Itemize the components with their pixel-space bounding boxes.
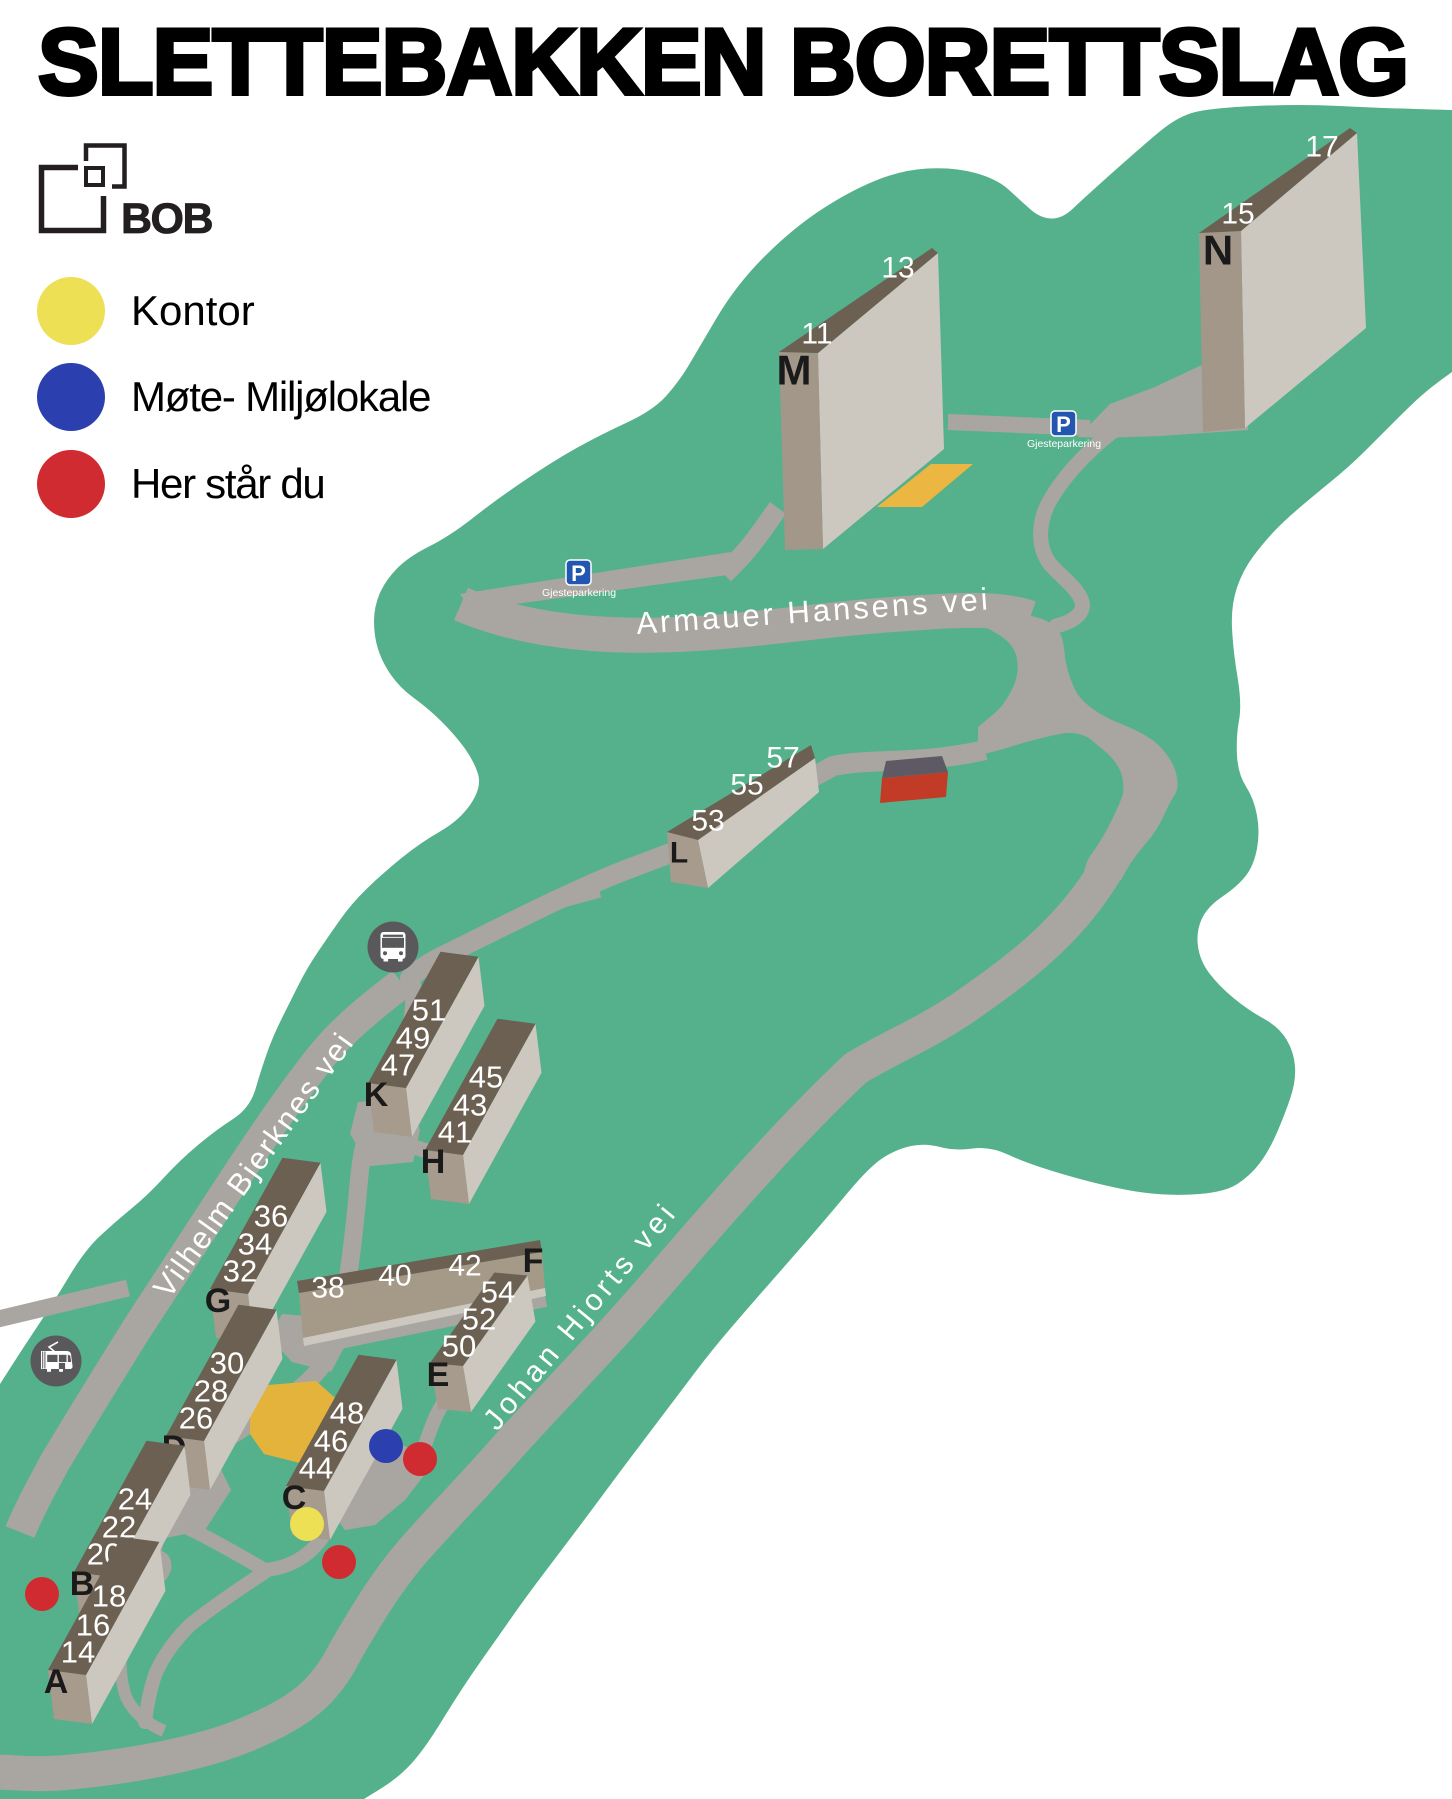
svg-text:13: 13 [881, 252, 914, 285]
svg-text:53: 53 [691, 805, 724, 838]
svg-text:G: G [205, 1282, 231, 1320]
svg-text:Kontor: Kontor [131, 287, 255, 334]
svg-text:24: 24 [118, 1482, 152, 1517]
svg-text:P: P [1056, 412, 1071, 437]
svg-text:N: N [1203, 227, 1233, 274]
svg-text:M: M [777, 347, 812, 394]
svg-text:P: P [571, 561, 586, 586]
svg-text:42: 42 [448, 1250, 481, 1283]
svg-text:L: L [670, 837, 688, 870]
svg-text:Møte- Miljølokale: Møte- Miljølokale [131, 373, 430, 420]
svg-text:K: K [364, 1076, 389, 1114]
svg-text:Her står du: Her står du [131, 460, 324, 507]
svg-text:54: 54 [481, 1275, 515, 1310]
svg-text:30: 30 [210, 1346, 244, 1381]
svg-text:51: 51 [412, 993, 446, 1028]
svg-text:H: H [421, 1143, 446, 1181]
svg-text:45: 45 [469, 1060, 503, 1095]
svg-text:36: 36 [254, 1199, 288, 1234]
svg-text:F: F [523, 1242, 544, 1280]
svg-text:18: 18 [92, 1579, 126, 1614]
svg-text:A: A [44, 1663, 69, 1701]
svg-text:BOB: BOB [121, 195, 213, 243]
svg-text:Gjesteparkering: Gjesteparkering [542, 587, 616, 599]
svg-text:40: 40 [378, 1260, 411, 1293]
svg-text:E: E [427, 1356, 450, 1394]
svg-text:48: 48 [330, 1396, 364, 1431]
svg-text:57: 57 [766, 742, 799, 775]
svg-text:55: 55 [730, 769, 763, 802]
svg-text:17: 17 [1305, 131, 1338, 164]
svg-text:Gjesteparkering: Gjesteparkering [1027, 438, 1101, 450]
svg-text:38: 38 [311, 1272, 344, 1305]
svg-text:SLETTEBAKKEN BORETTSLAG: SLETTEBAKKEN BORETTSLAG [38, 9, 1408, 114]
